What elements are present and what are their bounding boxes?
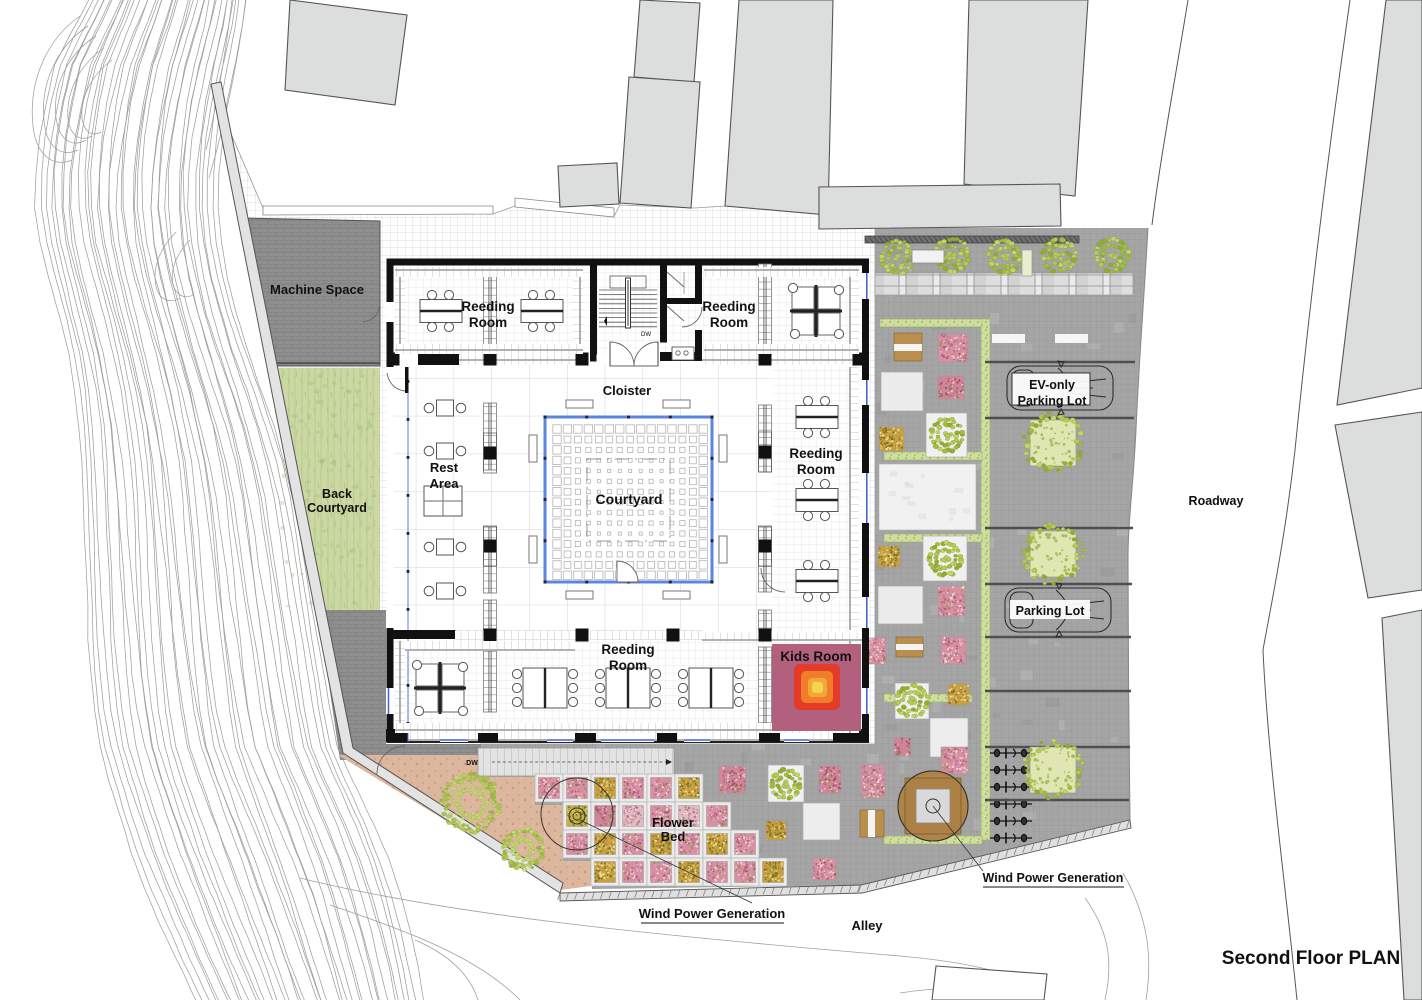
svg-text:Reeding: Reeding [461, 299, 514, 314]
svg-text:Courtyard: Courtyard [307, 501, 367, 515]
svg-text:DW: DW [466, 760, 478, 767]
svg-text:Reeding: Reeding [702, 299, 755, 314]
svg-text:Room: Room [469, 315, 507, 330]
svg-text:Back: Back [322, 487, 352, 501]
svg-text:Machine Space: Machine Space [270, 282, 364, 297]
svg-text:DW: DW [641, 332, 651, 338]
